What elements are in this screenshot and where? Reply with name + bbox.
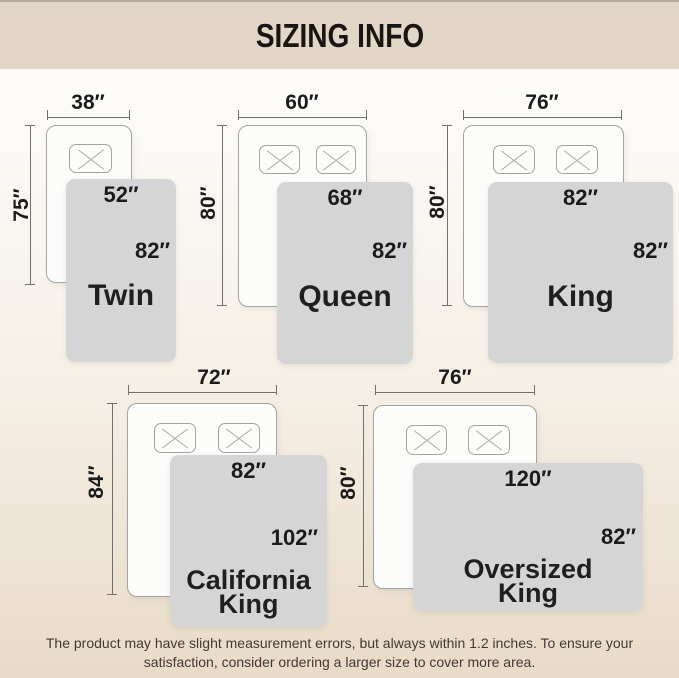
pillow-x-icon [414, 430, 440, 450]
cal-king-bed-width-dimension-line [128, 392, 277, 393]
oversized-king-bed-width-value: 76″ [425, 366, 485, 390]
twin-name-label: Twin [66, 281, 176, 311]
pillow-x-icon [78, 149, 104, 169]
queen-bed-length-value: 80″ [197, 179, 221, 227]
oversized-king-pillow-right [468, 425, 510, 455]
pillow-x-icon [476, 430, 502, 450]
oversized-king-blanket-width-value: 120″ [413, 466, 643, 492]
cal-king-blanket: 82″ 102″ California King [170, 455, 327, 627]
king-name-label: King [488, 282, 673, 312]
king-blanket-length-value: 82″ [633, 238, 668, 264]
cal-king-bed-length-value: 84″ [85, 458, 109, 506]
sizing-info-page: SIZING INFO 38″ 75″ 52″ 82″ Twin 60″ 80″ [0, 0, 679, 678]
disclaimer-line2: satisfaction, consider ordering a larger… [0, 653, 679, 672]
twin-blanket-width-value: 52″ [66, 182, 176, 208]
king-blanket-width-value: 82″ [488, 185, 673, 211]
oversized-king-bed-width-dimension-line [375, 392, 535, 393]
pillow-x-icon [226, 428, 252, 448]
king-blanket: 82″ 82″ King [488, 182, 673, 363]
king-pillow-right [556, 145, 598, 174]
disclaimer-text: The product may have slight measurement … [0, 634, 679, 671]
queen-name-label: Queen [277, 282, 413, 312]
oversized-king-blanket: 120″ 82″ Oversized King [413, 463, 643, 611]
oversized-king-bed-length-dimension-line [363, 405, 364, 587]
king-bed-width-value: 76″ [512, 91, 572, 115]
twin-blanket-length-value: 82″ [135, 238, 170, 264]
pillow-x-icon [323, 150, 349, 170]
cal-king-blanket-width-value: 82″ [170, 458, 327, 484]
pillow-x-icon [501, 150, 527, 170]
twin-blanket: 52″ 82″ Twin [66, 179, 176, 362]
twin-bed-width-dimension-line [47, 117, 130, 118]
header-bar: SIZING INFO [0, 0, 679, 69]
king-bed-length-value: 80″ [426, 178, 450, 226]
twin-pillow [69, 144, 112, 173]
pillow-x-icon [162, 428, 188, 448]
twin-bed-width-value: 38″ [58, 91, 118, 115]
king-bed-width-dimension-line [463, 117, 622, 118]
cal-king-bed-width-value: 72″ [184, 366, 244, 390]
king-pillow-left [493, 145, 535, 174]
queen-bed-length-dimension-line [222, 125, 223, 306]
page-title: SIZING INFO [255, 17, 423, 55]
queen-blanket-width-value: 68″ [277, 185, 413, 211]
oversized-king-pillow-left [406, 425, 447, 455]
pillow-x-icon [267, 150, 293, 170]
queen-bed-width-dimension-line [238, 117, 367, 118]
pillow-x-icon [564, 150, 590, 170]
disclaimer-line1: The product may have slight measurement … [0, 634, 679, 653]
queen-blanket-length-value: 82″ [372, 238, 407, 264]
oversized-king-blanket-length-value: 82″ [601, 524, 636, 550]
queen-bed-width-value: 60″ [272, 91, 332, 115]
cal-king-blanket-length-value: 102″ [271, 525, 318, 551]
cal-king-pillow-left [154, 423, 196, 453]
oversized-king-bed-length-value: 80″ [337, 459, 361, 507]
twin-bed-length-value: 75″ [10, 181, 34, 229]
queen-pillow-right [316, 145, 356, 174]
queen-blanket: 68″ 82″ Queen [277, 182, 413, 364]
queen-pillow-left [259, 145, 300, 174]
cal-king-bed-length-dimension-line [112, 403, 113, 595]
cal-king-name-line2: King [170, 592, 327, 616]
oversized-king-name-line2: King [413, 581, 643, 605]
cal-king-pillow-right [218, 423, 260, 453]
